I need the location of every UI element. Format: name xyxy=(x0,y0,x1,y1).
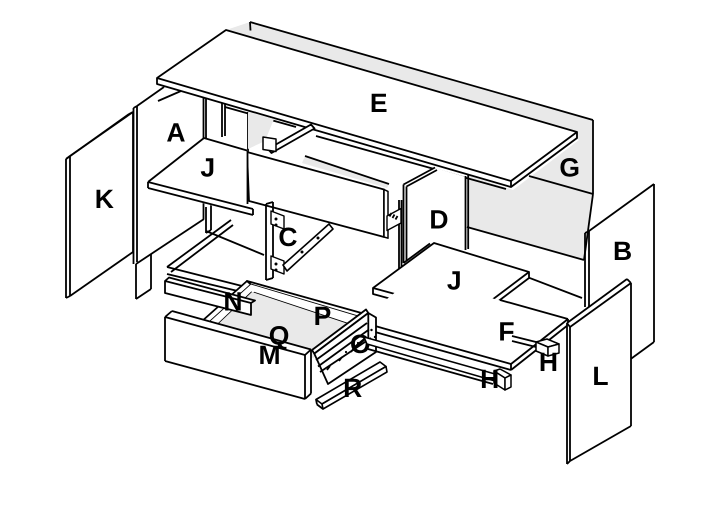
svg-text:A: A xyxy=(166,118,185,148)
svg-text:J: J xyxy=(200,153,215,183)
svg-text:P: P xyxy=(314,301,332,331)
svg-text:D: D xyxy=(429,205,448,235)
svg-text:R: R xyxy=(343,373,362,403)
svg-text:M: M xyxy=(259,340,281,370)
svg-text:F: F xyxy=(498,316,514,346)
svg-text:E: E xyxy=(370,88,388,118)
svg-text:J: J xyxy=(447,265,462,295)
svg-text:H: H xyxy=(539,347,558,377)
svg-text:N: N xyxy=(223,286,242,316)
svg-text:C: C xyxy=(278,222,297,252)
svg-text:L: L xyxy=(592,361,608,391)
svg-text:B: B xyxy=(613,236,632,266)
svg-text:G: G xyxy=(559,153,580,183)
svg-text:H: H xyxy=(480,364,499,394)
svg-text:K: K xyxy=(95,184,114,214)
